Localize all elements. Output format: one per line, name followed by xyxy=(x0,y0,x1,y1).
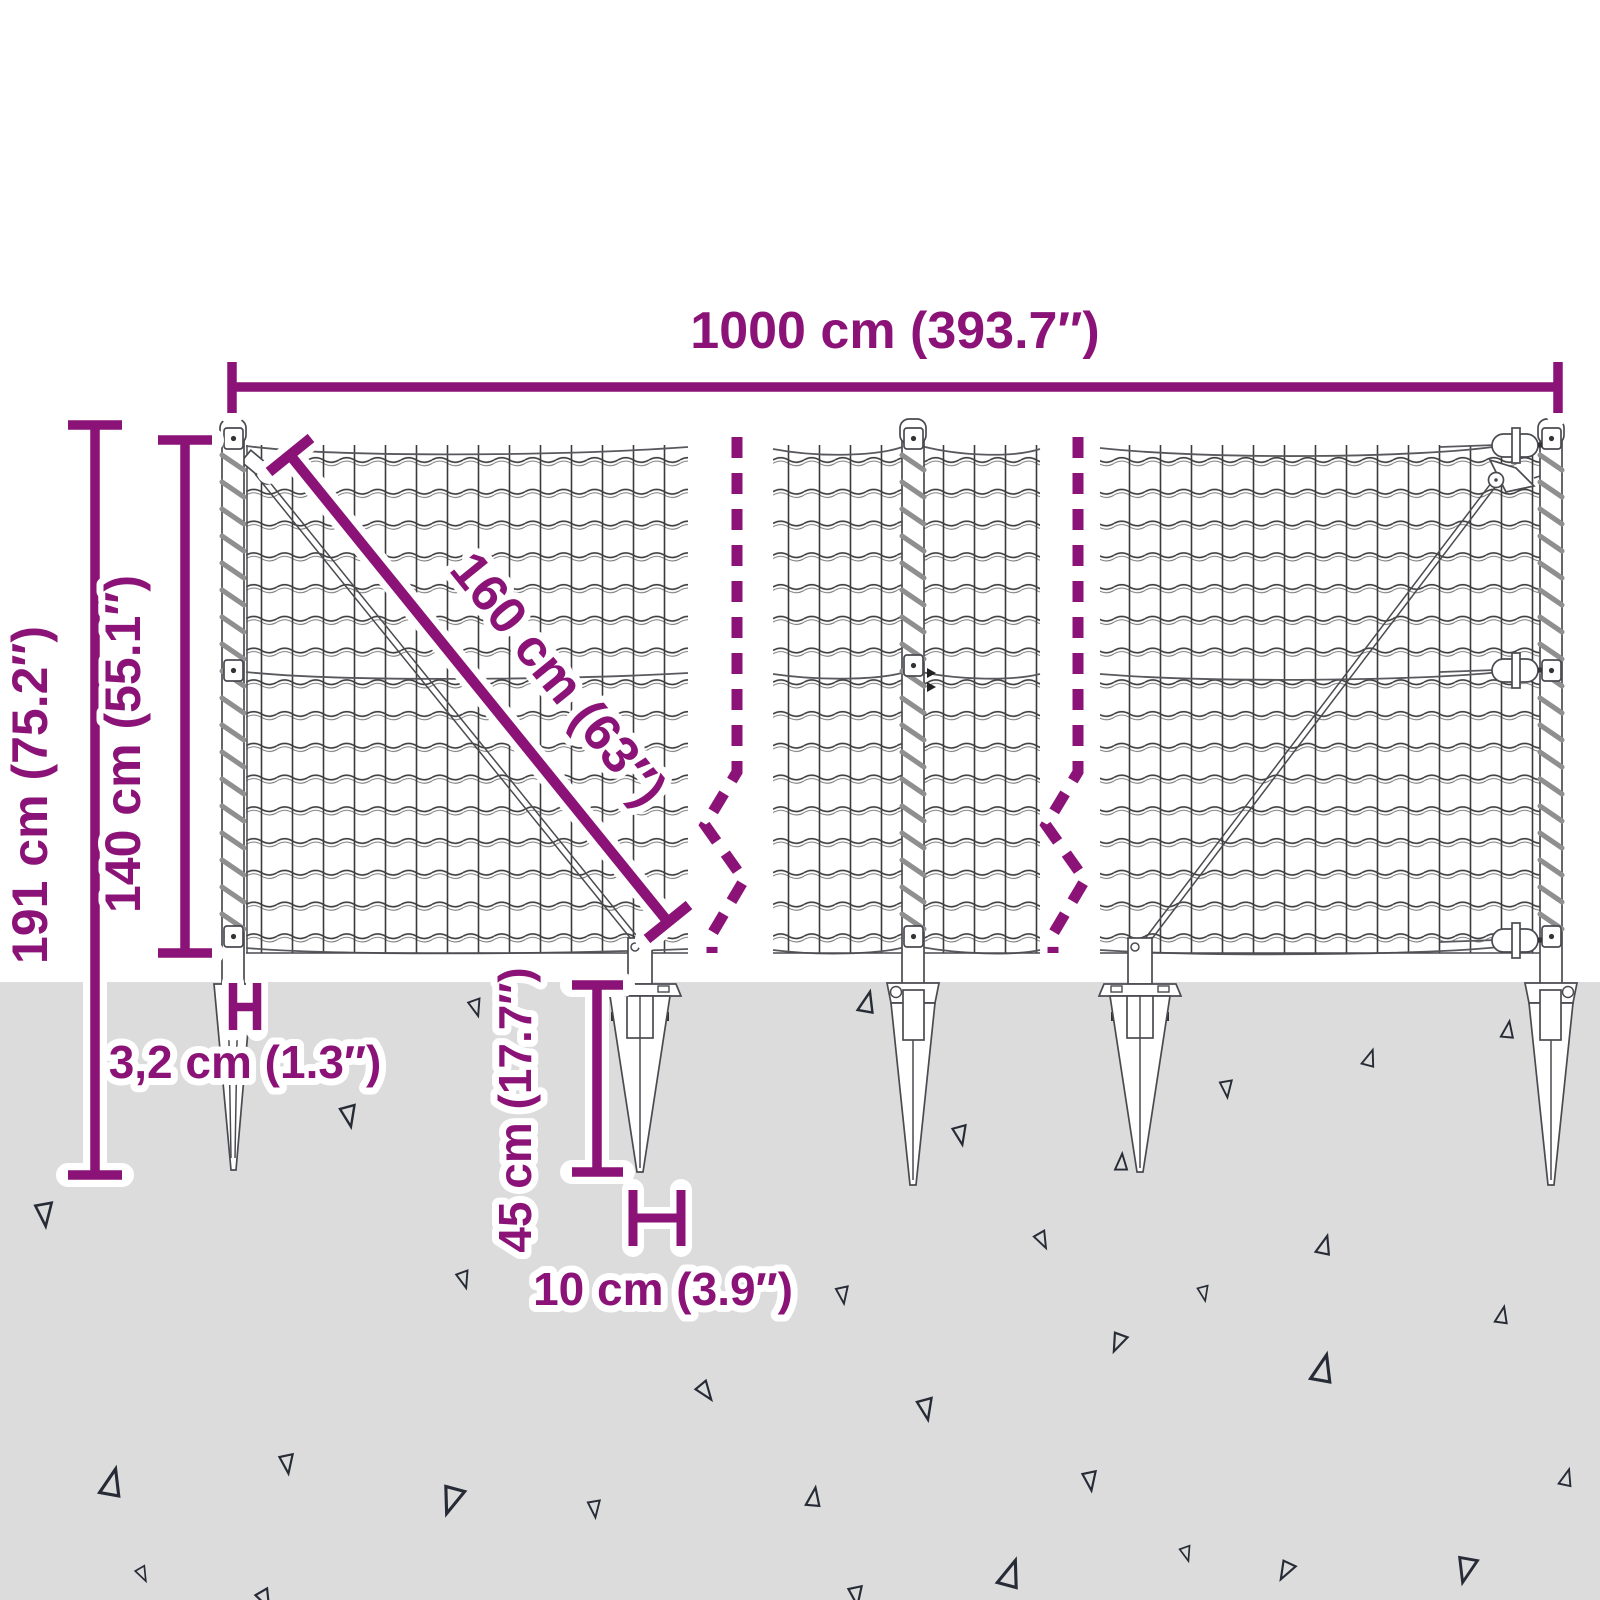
post-left xyxy=(220,419,246,984)
fence-dimension-diagram: 1000 cm (393.7″) 191 cm (75.2″) 140 cm (… xyxy=(0,0,1600,1600)
dim-spike-depth-label: 45 cm (17.7″) xyxy=(489,967,541,1252)
break-line-left xyxy=(705,437,744,953)
diagram-canvas: 1000 cm (393.7″) 191 cm (75.2″) 140 cm (… xyxy=(0,0,1600,1600)
dim-width-label: 1000 cm (393.7″) xyxy=(690,302,1099,360)
dim-spike-width-label: 10 cm (3.9″) xyxy=(533,1263,793,1315)
break-line-right xyxy=(1046,437,1085,953)
mesh-panel-3 xyxy=(1100,445,1543,954)
brace-anchor-connector-2 xyxy=(1128,938,1152,984)
dim-width: 1000 cm (393.7″) xyxy=(232,302,1558,413)
post-right xyxy=(1538,419,1564,1002)
dim-post-width-label: 3,2 cm (1.3″) xyxy=(109,1036,382,1088)
dim-fence-height-label: 140 cm (55.1″) xyxy=(95,575,151,913)
dim-fence-height: 140 cm (55.1″) xyxy=(95,440,212,953)
dim-total-height-label: 191 cm (75.2″) xyxy=(2,626,58,964)
